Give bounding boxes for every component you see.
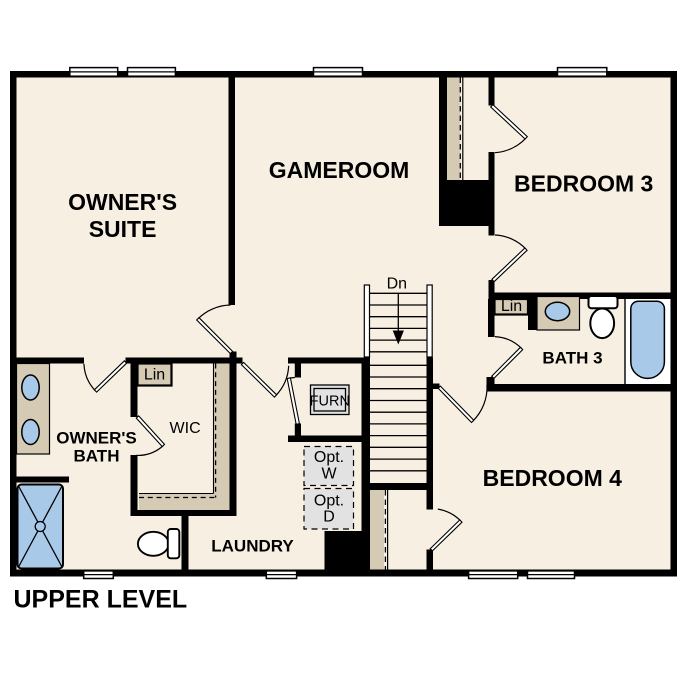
svg-text:D: D xyxy=(323,509,335,526)
svg-text:Lin: Lin xyxy=(144,367,165,384)
svg-text:WIC: WIC xyxy=(170,420,201,437)
svg-text:UPPER LEVEL: UPPER LEVEL xyxy=(14,586,188,614)
svg-text:GAMEROOM: GAMEROOM xyxy=(269,157,410,183)
svg-text:Dn: Dn xyxy=(387,276,407,293)
svg-text:W: W xyxy=(321,465,337,482)
svg-text:BEDROOM 3: BEDROOM 3 xyxy=(514,170,653,196)
svg-text:Lin: Lin xyxy=(501,298,522,315)
svg-text:OWNER'S: OWNER'S xyxy=(56,428,137,447)
svg-text:FURN: FURN xyxy=(310,393,350,409)
svg-text:Opt.: Opt. xyxy=(314,449,344,466)
svg-text:LAUNDRY: LAUNDRY xyxy=(211,537,294,556)
svg-text:SUITE: SUITE xyxy=(89,216,157,242)
svg-text:BATH 3: BATH 3 xyxy=(542,349,602,368)
svg-text:Opt.: Opt. xyxy=(314,493,344,510)
svg-text:BATH: BATH xyxy=(74,446,120,465)
svg-text:OWNER'S: OWNER'S xyxy=(68,189,177,215)
svg-text:BEDROOM 4: BEDROOM 4 xyxy=(483,465,623,491)
